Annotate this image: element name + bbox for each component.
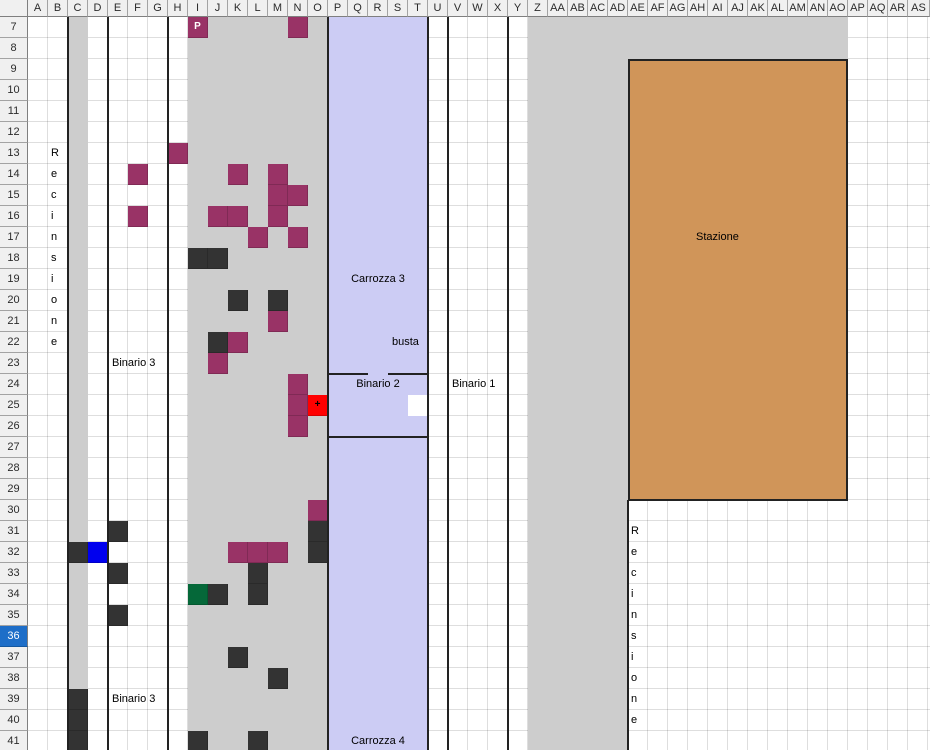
column-header-AF[interactable]: AF xyxy=(648,0,668,17)
cell-M16[interactable] xyxy=(268,206,288,227)
cell-J16[interactable] xyxy=(208,206,228,227)
column-header-AC[interactable]: AC xyxy=(588,0,608,17)
column-header-G[interactable]: G xyxy=(148,0,168,17)
cell-L17[interactable] xyxy=(248,227,268,248)
track3-line-left xyxy=(107,17,109,750)
label-recinsione-right-letter-3: c xyxy=(631,563,645,584)
column-header-AQ[interactable]: AQ xyxy=(868,0,888,17)
label-carrozza-4: Carrozza 4 xyxy=(328,731,428,750)
row-header-36[interactable]: 36 xyxy=(0,626,28,647)
column-header-K[interactable]: K xyxy=(228,0,248,17)
label-recinsione-left-letter-4: i xyxy=(51,206,65,227)
row-header-10[interactable]: 10 xyxy=(0,80,28,101)
cell-I7[interactable]: P xyxy=(188,17,208,38)
cell-L33[interactable] xyxy=(248,563,268,584)
row-header-27[interactable]: 27 xyxy=(0,437,28,458)
label-recinsione-left-letter-2: e xyxy=(51,164,65,185)
column-header-AA[interactable]: AA xyxy=(548,0,568,17)
cell-F16[interactable] xyxy=(128,206,148,227)
row-header-28[interactable]: 28 xyxy=(0,458,28,479)
cell-M38[interactable] xyxy=(268,668,288,689)
cell-K14[interactable] xyxy=(228,164,248,185)
row-header-8[interactable]: 8 xyxy=(0,38,28,59)
column-header-I[interactable]: I xyxy=(188,0,208,17)
cell-C39[interactable] xyxy=(68,689,88,710)
column-header-B[interactable]: B xyxy=(48,0,68,17)
label-recinsione-right-letter-6: s xyxy=(631,626,645,647)
cell-N25[interactable] xyxy=(288,395,308,416)
column-header-X[interactable]: X xyxy=(488,0,508,17)
row-header-41[interactable]: 41 xyxy=(0,731,28,750)
column-header-D[interactable]: D xyxy=(88,0,108,17)
row-header-22[interactable]: 22 xyxy=(0,332,28,353)
row-header-7[interactable]: 7 xyxy=(0,17,28,38)
row-header-12[interactable]: 12 xyxy=(0,122,28,143)
cell-E33[interactable] xyxy=(108,563,128,584)
cell-H13[interactable] xyxy=(168,143,188,164)
column-header-AK[interactable]: AK xyxy=(748,0,768,17)
cell-N24[interactable] xyxy=(288,374,308,395)
cell-L34[interactable] xyxy=(248,584,268,605)
column-header-N[interactable]: N xyxy=(288,0,308,17)
fence-line-right xyxy=(627,500,629,750)
label-recinsione-right-letter-9: n xyxy=(631,689,645,710)
row-header-29[interactable]: 29 xyxy=(0,479,28,500)
label-recinsione-left-letter-7: i xyxy=(51,269,65,290)
label-recinsione-left-letter-3: c xyxy=(51,185,65,206)
column-header-F[interactable]: F xyxy=(128,0,148,17)
label-recinsione-left-letter-6: s xyxy=(51,248,65,269)
cell-K16[interactable] xyxy=(228,206,248,227)
column-header-S[interactable]: S xyxy=(388,0,408,17)
column-header-AL[interactable]: AL xyxy=(768,0,788,17)
label-recinsione-right-letter-5: n xyxy=(631,605,645,626)
column-header-J[interactable]: J xyxy=(208,0,228,17)
column-header-E[interactable]: E xyxy=(108,0,128,17)
label-recinsione-left-letter-5: n xyxy=(51,227,65,248)
row-header-17[interactable]: 17 xyxy=(0,227,28,248)
cell-J22[interactable] xyxy=(208,332,228,353)
label-binario-2: Binario 2 xyxy=(328,374,428,395)
label-recinsione-right-letter-2: e xyxy=(631,542,645,563)
cell-M21[interactable] xyxy=(268,311,288,332)
column-header-Z[interactable]: Z xyxy=(528,0,548,17)
row-header-11[interactable]: 11 xyxy=(0,101,28,122)
label-carrozza-3: Carrozza 3 xyxy=(328,269,428,290)
row-header-13[interactable]: 13 xyxy=(0,143,28,164)
cell-K22[interactable] xyxy=(228,332,248,353)
row-header-18[interactable]: 18 xyxy=(0,248,28,269)
label-recinsione-left-letter-8: o xyxy=(51,290,65,311)
column-header-M[interactable]: M xyxy=(268,0,288,17)
cell-D32[interactable] xyxy=(88,542,108,563)
row-header-19[interactable]: 19 xyxy=(0,269,28,290)
row-header-30[interactable]: 30 xyxy=(0,500,28,521)
cell-M32[interactable] xyxy=(268,542,288,563)
label-stazione: Stazione xyxy=(696,227,816,248)
label-binario-3-upper: Binario 3 xyxy=(112,353,232,374)
label-recinsione-right-letter-7: i xyxy=(631,647,645,668)
column-header-AS[interactable]: AS xyxy=(908,0,930,17)
cell-N17[interactable] xyxy=(288,227,308,248)
column-header-C[interactable]: C xyxy=(68,0,88,17)
cell-M14[interactable] xyxy=(268,164,288,185)
cell-K37[interactable] xyxy=(228,647,248,668)
cell-C40[interactable] xyxy=(68,710,88,731)
cell-I18[interactable] xyxy=(188,248,208,269)
cell-F14[interactable] xyxy=(128,164,148,185)
cell-N15[interactable] xyxy=(288,185,308,206)
cell-C41[interactable] xyxy=(68,731,88,750)
label-binario-3-lower: Binario 3 xyxy=(112,689,232,710)
column-header-AN[interactable]: AN xyxy=(808,0,828,17)
busta-bottom xyxy=(328,436,428,438)
region-yard-right-top xyxy=(528,17,848,59)
row-header-15[interactable]: 15 xyxy=(0,185,28,206)
cell-I41[interactable] xyxy=(188,731,208,750)
cell-N7[interactable] xyxy=(288,17,308,38)
row-header-25[interactable]: 25 xyxy=(0,395,28,416)
label-binario-1: Binario 1 xyxy=(452,374,572,395)
row-header-32[interactable]: 32 xyxy=(0,542,28,563)
column-header-W[interactable]: W xyxy=(468,0,488,17)
column-header-T[interactable]: T xyxy=(408,0,428,17)
cell-M20[interactable] xyxy=(268,290,288,311)
cell-O30[interactable] xyxy=(308,500,328,521)
region-station xyxy=(628,59,848,501)
label-recinsione-left-letter-9: n xyxy=(51,311,65,332)
label-busta: busta xyxy=(392,332,512,353)
row-header-35[interactable]: 35 xyxy=(0,605,28,626)
row-header-20[interactable]: 20 xyxy=(0,290,28,311)
column-header-AJ[interactable]: AJ xyxy=(728,0,748,17)
column-header-AB[interactable]: AB xyxy=(568,0,588,17)
cell-J34[interactable] xyxy=(208,584,228,605)
column-header-P[interactable]: P xyxy=(328,0,348,17)
column-header-AP[interactable]: AP xyxy=(848,0,868,17)
column-header-AD[interactable]: AD xyxy=(608,0,628,17)
row-header-40[interactable]: 40 xyxy=(0,710,28,731)
column-header-A[interactable]: A xyxy=(28,0,48,17)
label-recinsione-left-letter-10: e xyxy=(51,332,65,353)
column-header-V[interactable]: V xyxy=(448,0,468,17)
row-header-26[interactable]: 26 xyxy=(0,416,28,437)
row-header-38[interactable]: 38 xyxy=(0,668,28,689)
cell-K20[interactable] xyxy=(228,290,248,311)
row-header-16[interactable]: 16 xyxy=(0,206,28,227)
cell-M15[interactable] xyxy=(268,185,288,206)
fence-line-left xyxy=(67,17,69,750)
cell-N26[interactable] xyxy=(288,416,308,437)
column-header-R[interactable]: R xyxy=(368,0,388,17)
track3-line-right xyxy=(167,17,169,750)
column-header-AG[interactable]: AG xyxy=(668,0,688,17)
column-header-O[interactable]: O xyxy=(308,0,328,17)
column-header-AI[interactable]: AI xyxy=(708,0,728,17)
cell-label-O25: + xyxy=(315,400,321,410)
cell-O32[interactable] xyxy=(308,542,328,563)
column-header-AM[interactable]: AM xyxy=(788,0,808,17)
cell-O25[interactable]: + xyxy=(308,395,328,416)
region-column-c-strip xyxy=(68,17,88,750)
column-header-AE[interactable]: AE xyxy=(628,0,648,17)
cell-I34[interactable] xyxy=(188,584,208,605)
column-header-AO[interactable]: AO xyxy=(828,0,848,17)
label-recinsione-right-letter-1: R xyxy=(631,521,645,542)
column-header-Q[interactable]: Q xyxy=(348,0,368,17)
row-header-14[interactable]: 14 xyxy=(0,164,28,185)
cell-label-I7: P xyxy=(194,22,201,32)
label-recinsione-right-letter-4: i xyxy=(631,584,645,605)
label-recinsione-right-letter-10: e xyxy=(631,710,645,731)
row-header-21[interactable]: 21 xyxy=(0,311,28,332)
cell-C32[interactable] xyxy=(68,542,88,563)
cell-E31[interactable] xyxy=(108,521,128,542)
row-header-9[interactable]: 9 xyxy=(0,59,28,80)
label-recinsione-right-letter-8: o xyxy=(631,668,645,689)
row-header-24[interactable]: 24 xyxy=(0,374,28,395)
label-recinsione-left-letter-1: R xyxy=(51,143,65,164)
cell-J18[interactable] xyxy=(208,248,228,269)
cell-L41[interactable] xyxy=(248,731,268,750)
column-header-AR[interactable]: AR xyxy=(888,0,908,17)
cell-L32[interactable] xyxy=(248,542,268,563)
row-header-34[interactable]: 34 xyxy=(0,584,28,605)
row-header-39[interactable]: 39 xyxy=(0,689,28,710)
column-header-Y[interactable]: Y xyxy=(508,0,528,17)
cell-K32[interactable] xyxy=(228,542,248,563)
row-header-31[interactable]: 31 xyxy=(0,521,28,542)
column-header-AH[interactable]: AH xyxy=(688,0,708,17)
select-all-corner[interactable] xyxy=(0,0,28,17)
spreadsheet: P+RecinsioneBinario 3Carrozza 3bustaBina… xyxy=(0,0,930,750)
row-header-37[interactable]: 37 xyxy=(0,647,28,668)
region-yard-right xyxy=(528,59,628,750)
column-header-U[interactable]: U xyxy=(428,0,448,17)
row-header-33[interactable]: 33 xyxy=(0,563,28,584)
column-header-H[interactable]: H xyxy=(168,0,188,17)
region-corridor-opening xyxy=(408,395,428,416)
cell-O31[interactable] xyxy=(308,521,328,542)
track1-line-left xyxy=(447,17,449,750)
cell-E35[interactable] xyxy=(108,605,128,626)
row-header-23[interactable]: 23 xyxy=(0,353,28,374)
column-header-L[interactable]: L xyxy=(248,0,268,17)
